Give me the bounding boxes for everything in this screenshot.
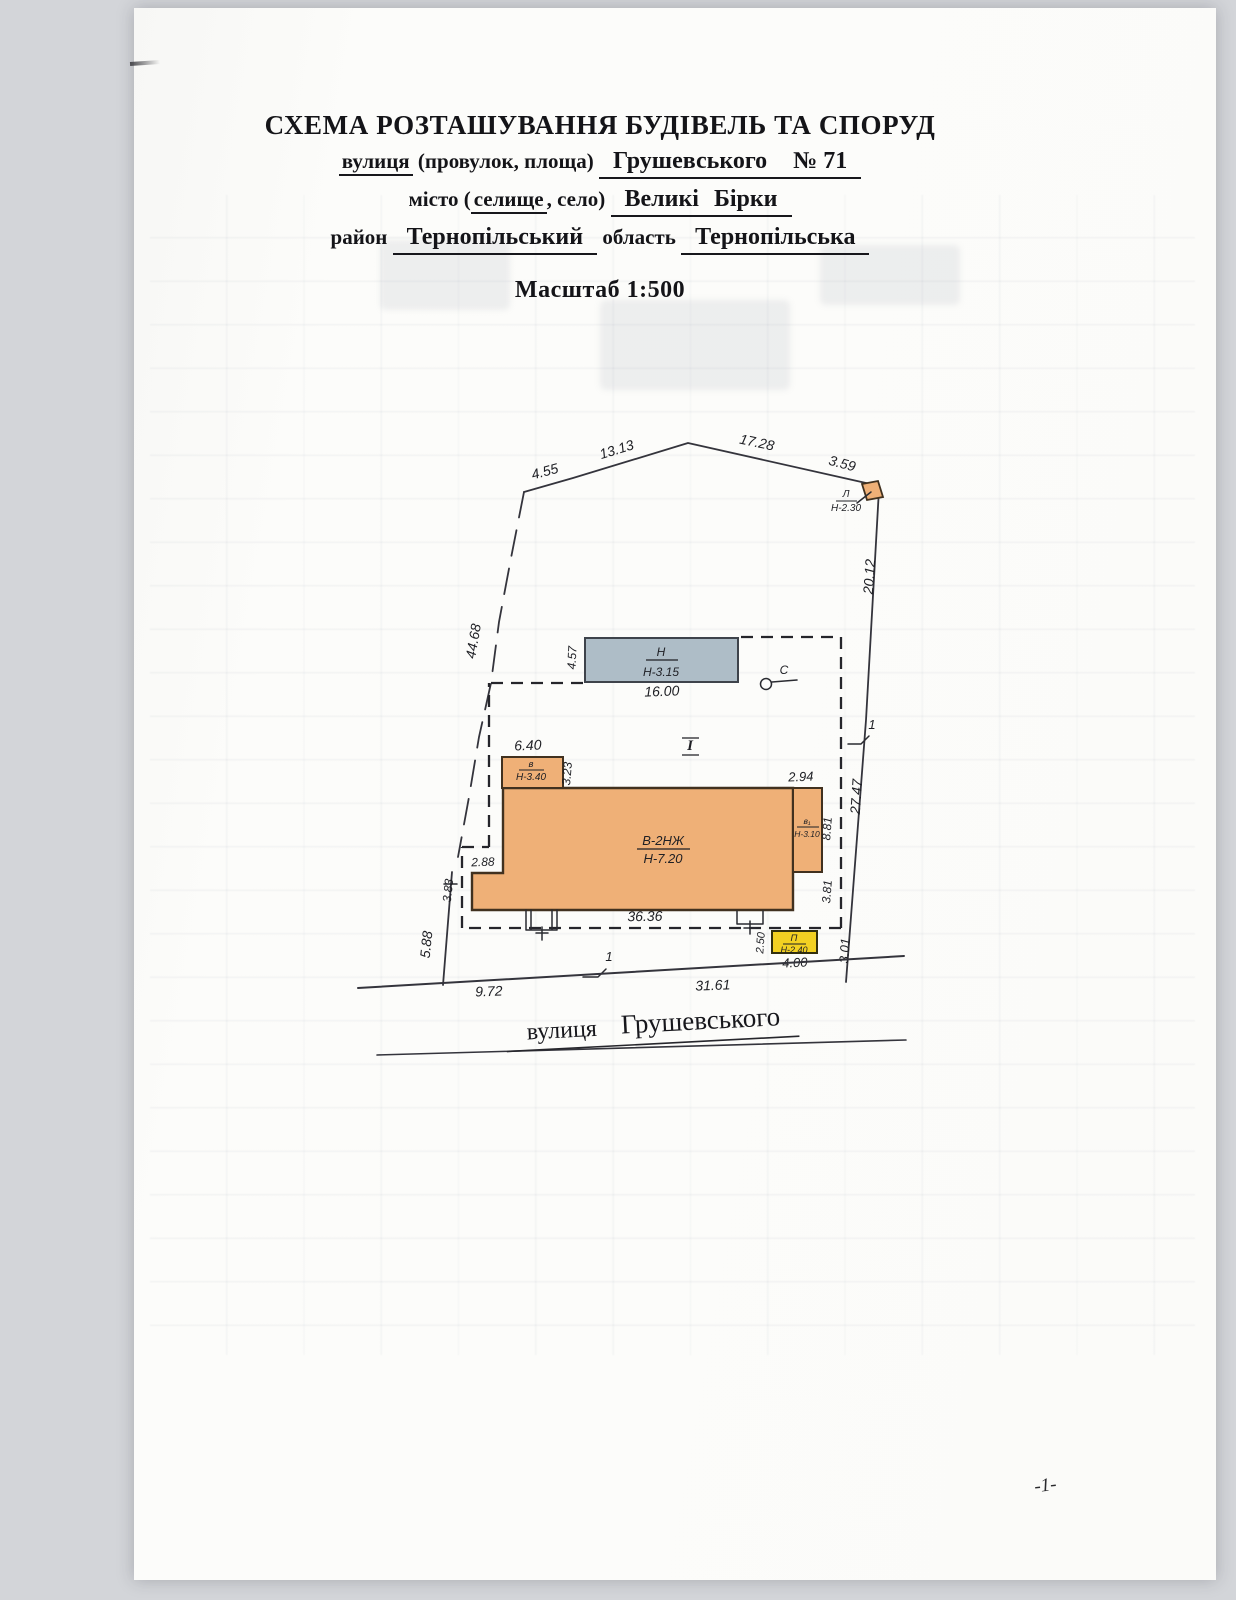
dim-street-2: 31.61	[695, 976, 731, 993]
plot-number: І	[686, 738, 694, 754]
dim-top-2: 13.13	[597, 436, 635, 462]
well-label: С	[780, 663, 789, 677]
boundary-mark-street: 1	[605, 949, 612, 964]
dim-top-4: 3.59	[827, 452, 858, 475]
main-house-height: Н-7.20	[643, 851, 683, 866]
dim-top-1: 4.55	[529, 460, 560, 483]
street-edge-upper	[358, 956, 904, 988]
street-edge-lower	[377, 1040, 906, 1055]
annex-right-code: в₁	[803, 816, 810, 826]
annex-left-code: в	[529, 759, 534, 770]
gazebo-height: Н-2.30	[831, 503, 861, 514]
street-name: Грушевського	[620, 1001, 781, 1039]
dim-top-3: 17.28	[738, 431, 776, 454]
boundary-mark-right-leader	[848, 736, 869, 744]
street-name-prefix: вулиця	[526, 1016, 597, 1046]
cellar-height: Н-2.40	[780, 945, 807, 955]
dim-right-2: 27.47	[847, 777, 866, 815]
annex-left-height: Н-3.40	[516, 772, 546, 783]
dim-annex-right-upper: 8.81	[819, 817, 835, 841]
dim-annex-right-width: 2.94	[787, 769, 814, 785]
scan-background: СХЕМА РОЗТАШУВАННЯ БУДІВЕЛЬ ТА СПОРУД ву…	[0, 0, 1236, 1600]
annex-right-height: Н-3.10	[794, 829, 820, 839]
porch-right	[737, 911, 763, 934]
dim-shed-depth: 4.57	[564, 644, 579, 669]
shed-height: Н-3.15	[643, 665, 679, 679]
dim-inner-step: 2.88	[470, 855, 495, 870]
porch-left	[526, 910, 557, 940]
dim-annex-left-depth: 3.23	[559, 761, 575, 786]
dim-annex-left-width: 6.40	[514, 737, 542, 754]
shed-code: Н	[657, 645, 666, 659]
dim-right-1: 20.12	[860, 558, 878, 595]
well-icon	[761, 679, 772, 690]
dim-cellar-depth: 2.50	[754, 931, 768, 955]
gazebo-code: Л	[842, 489, 850, 500]
dim-main-width: 36.36	[627, 908, 663, 925]
main-house	[472, 788, 793, 910]
main-house-code: В-2НЖ	[642, 833, 685, 848]
dim-shed-width: 16.00	[644, 682, 680, 699]
dim-annex-right-lower: 3.81	[819, 880, 835, 904]
page-number: -1-	[1033, 1474, 1058, 1498]
site-plan-drawing: Н Н-3.15 4.57 16.00 С І В-2НЖ Н-7.20 36.…	[0, 0, 1236, 1600]
well-tail-line	[772, 680, 797, 682]
boundary-mark-right: 1	[868, 717, 875, 732]
dim-left-2: 5.88	[417, 930, 436, 959]
dim-street-1: 9.72	[475, 983, 503, 1000]
cellar-code: П	[791, 933, 798, 944]
dim-left-1: 44.68	[462, 622, 484, 659]
dim-inner-left: 3.83	[440, 878, 456, 903]
